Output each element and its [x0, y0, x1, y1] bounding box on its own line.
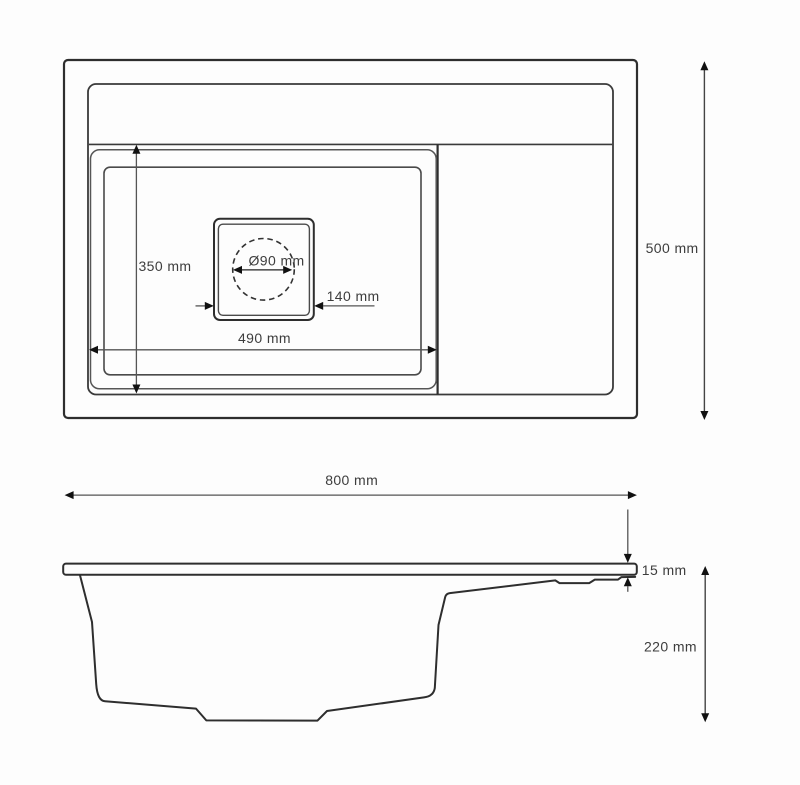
- svg-text:Ø90 mm: Ø90 mm: [249, 253, 305, 269]
- svg-text:350 mm: 350 mm: [139, 258, 192, 274]
- svg-text:15 mm: 15 mm: [642, 562, 687, 578]
- svg-text:220 mm: 220 mm: [644, 639, 697, 655]
- svg-text:140 mm: 140 mm: [327, 288, 380, 304]
- svg-text:800 mm: 800 mm: [325, 472, 378, 488]
- svg-text:490 mm: 490 mm: [238, 330, 291, 346]
- svg-text:500 mm: 500 mm: [646, 240, 699, 256]
